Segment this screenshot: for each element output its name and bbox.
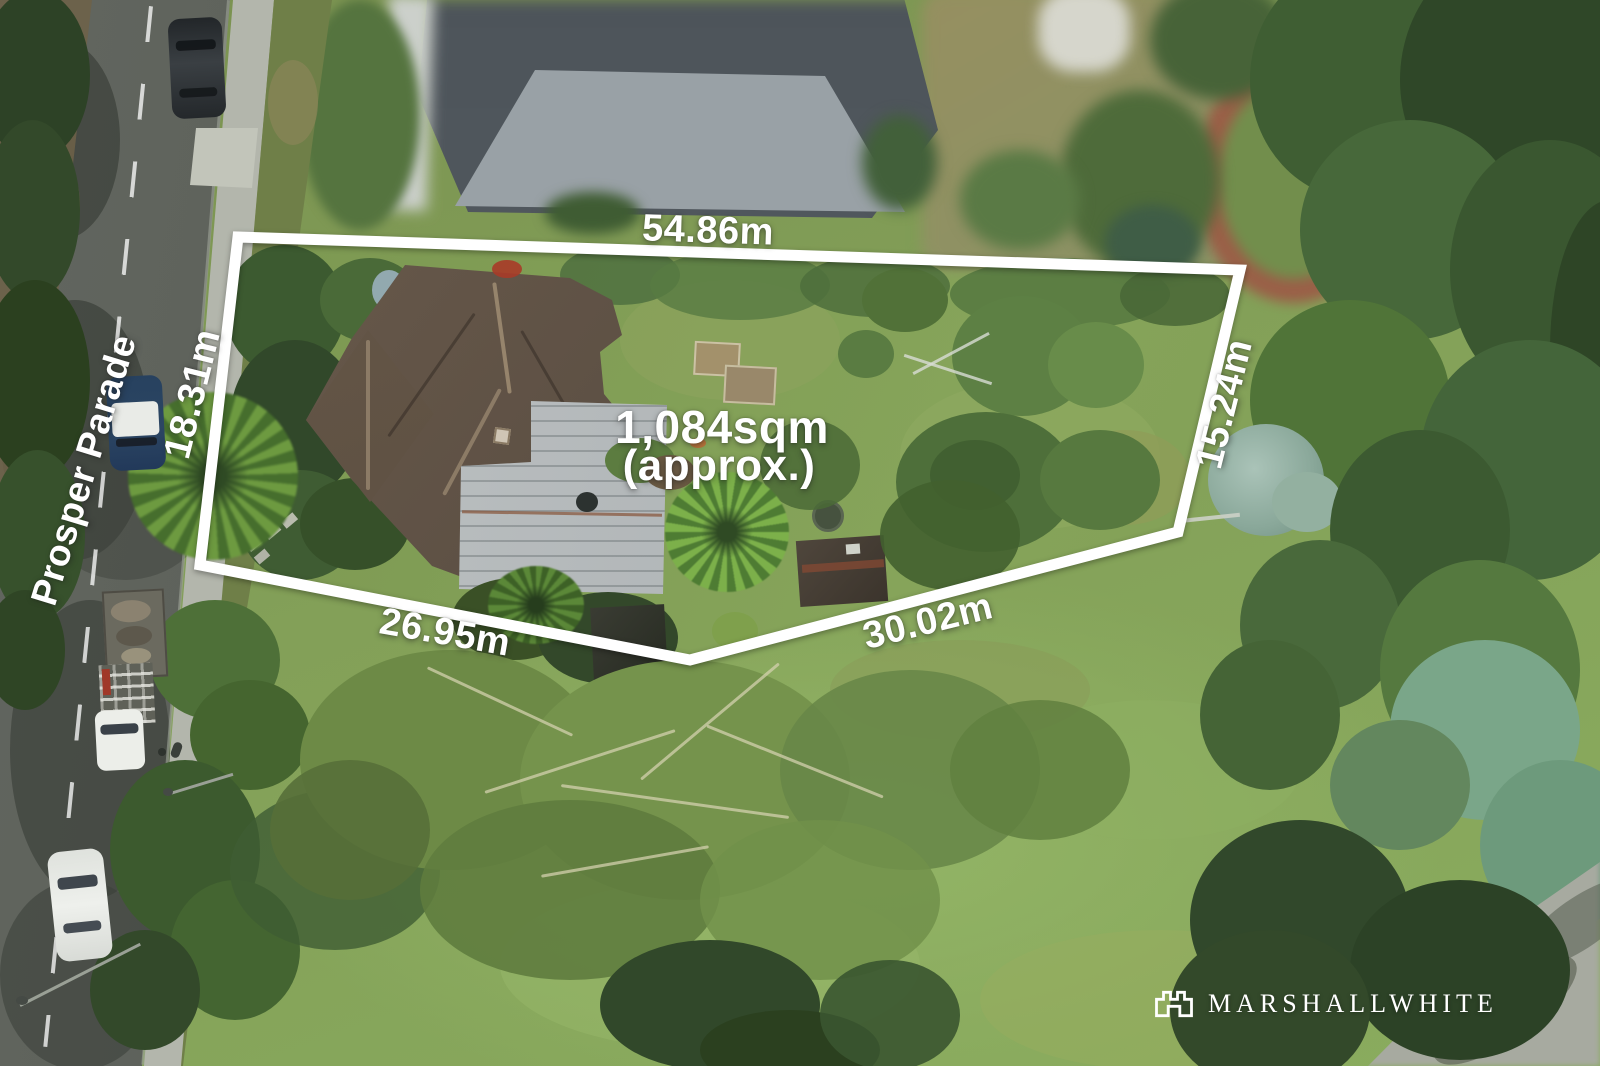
property-boundary-overlay [0,0,1600,1066]
castle-battlements-icon [1152,990,1196,1018]
agency-watermark: MARSHALLWHITE [1152,982,1498,1026]
agency-name: MARSHALLWHITE [1208,989,1498,1019]
measurement-top-boundary: 54.86m [641,207,774,254]
land-area-qualifier-label: (approx.) [623,441,816,491]
aerial-photo: 54.86m 18.31m 15.24m 26.95m 30.02m 1,084… [0,0,1600,1066]
